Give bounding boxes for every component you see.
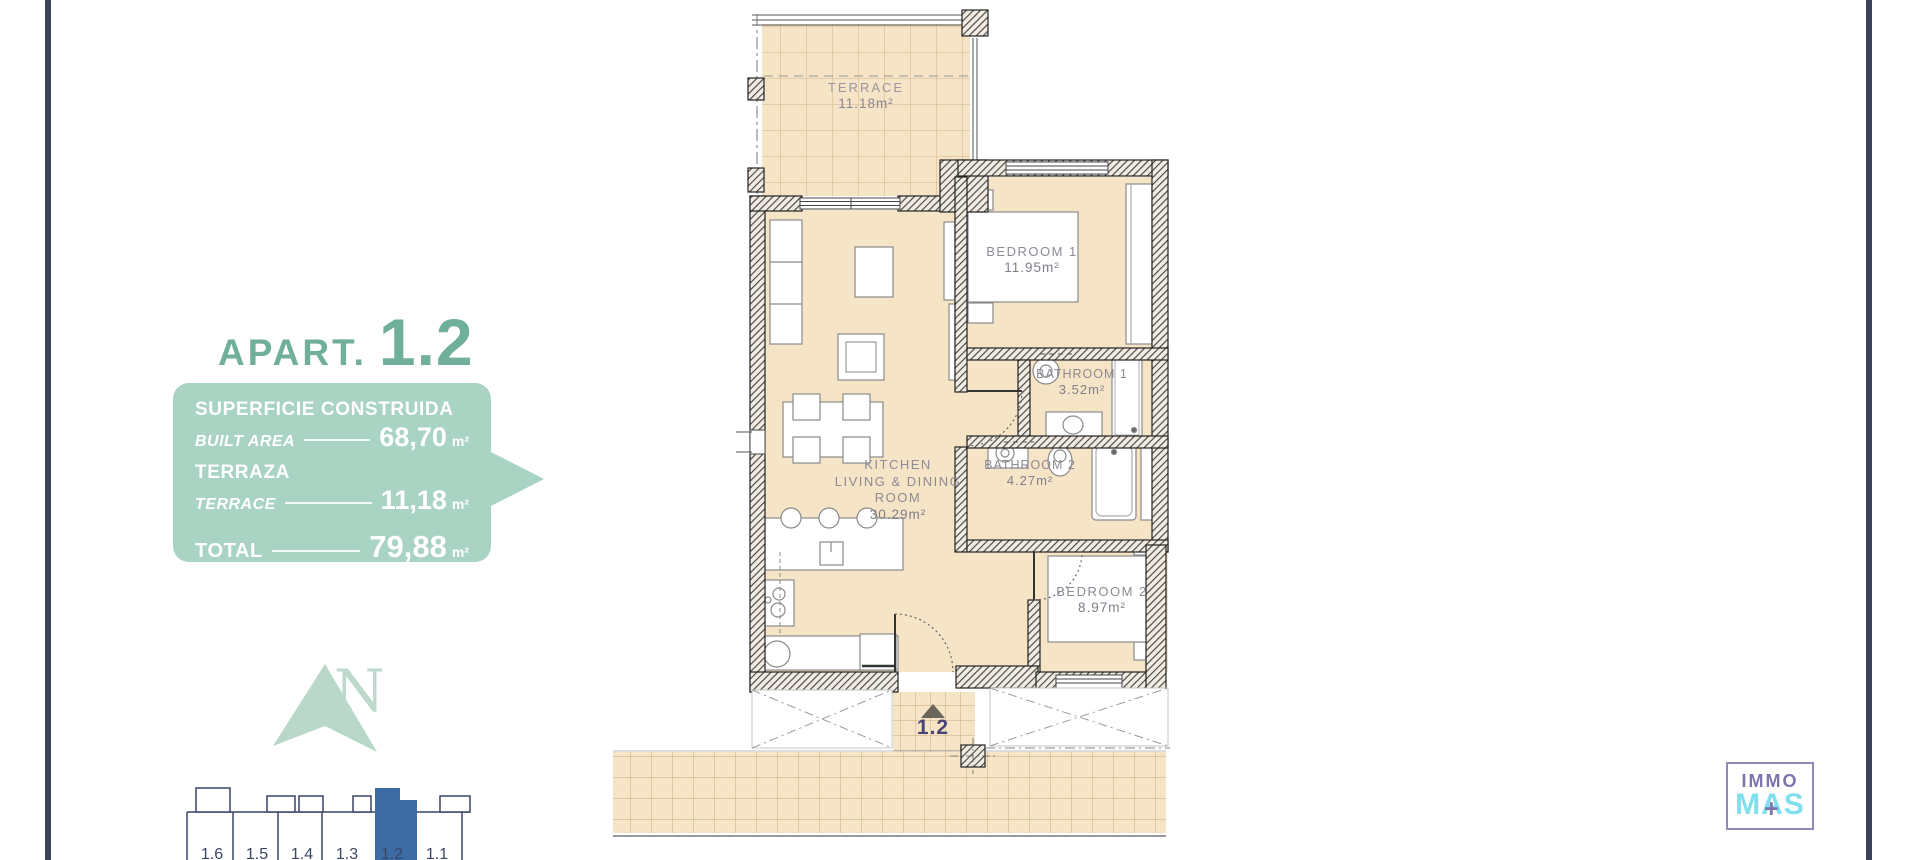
unit-label-1-4: 1.4 — [287, 846, 317, 860]
fridge — [860, 634, 896, 670]
chair — [793, 394, 820, 420]
total-row: TOTAL 79,88 m² — [195, 529, 469, 565]
unit-label-1-2: 1.2 — [377, 846, 407, 860]
unit-label-1-5: 1.5 — [242, 846, 272, 860]
built-area-label-en: BUILT AREA — [195, 433, 295, 451]
bottom-wall — [750, 672, 898, 692]
terrace-sliding-door — [800, 198, 900, 209]
north-letter: N — [334, 662, 385, 720]
left-wall-opening — [750, 430, 765, 454]
total-label: TOTAL — [195, 540, 263, 563]
built-area-label-es: SUPERFICIE CONSTRUIDA — [195, 399, 469, 421]
bed — [1048, 556, 1156, 642]
armchair — [838, 334, 884, 380]
unit-dividers — [187, 812, 462, 860]
terrace-unit: m² — [452, 496, 469, 512]
terrace-row: TERRACE 11,18 m² — [195, 485, 469, 516]
page-title: APART. 1.2 — [218, 304, 474, 380]
arrow-right-icon — [489, 451, 544, 507]
unit-label-1-3: 1.3 — [332, 846, 362, 860]
leader-line — [304, 439, 370, 441]
tv — [949, 304, 955, 380]
bathroom1-name: BATHROOM 1 — [1036, 367, 1128, 381]
surface-info-box: SUPERFICIE CONSTRUIDA BUILT AREA 68,70 m… — [173, 383, 491, 562]
immomas-logo: IMMO MAS + — [1726, 762, 1814, 830]
unit-label-1-6: 1.6 — [197, 846, 227, 860]
bedroom2-name: BEDROOM 2 — [1056, 584, 1148, 599]
chair — [793, 437, 820, 463]
bedroom2-window — [1056, 675, 1122, 688]
built-area-row: BUILT AREA 68,70 m² — [195, 422, 469, 453]
bedroom2-area: 8.97m² — [1078, 600, 1126, 615]
kitchen-sink — [764, 641, 790, 667]
bathroom2-name: BATHROOM 2 — [984, 458, 1076, 472]
tv-unit — [944, 222, 955, 300]
unit-label-1-1: 1.1 — [422, 846, 452, 860]
floor-plan-sheet: APART. 1.2 SUPERFICIE CONSTRUIDA BUILT A… — [0, 0, 1920, 860]
built-area-value: 68,70 — [379, 422, 447, 453]
built-area-unit: m² — [452, 433, 469, 449]
right-page-border — [1866, 0, 1872, 860]
terrace-label-en: TERRACE — [195, 496, 276, 514]
bathroom1-area: 3.52m² — [1059, 382, 1105, 397]
bar-stool — [781, 508, 801, 528]
bedroom1-area: 11.95m² — [1004, 260, 1060, 275]
entrance-unit-label: 1.2 — [917, 716, 949, 739]
floor-plan-drawing: TERRACE 11.18m² BEDROOM 1 11.95m² BATHRO… — [600, 0, 1200, 860]
living-name-line1: KITCHEN — [864, 457, 932, 472]
plus-icon: + — [1764, 795, 1779, 824]
shower — [1112, 352, 1142, 438]
terrace-label-es: TERRAZA — [195, 462, 469, 484]
total-unit: m² — [452, 544, 469, 560]
coffee-table — [855, 247, 893, 297]
apartment-number: 1.2 — [379, 304, 474, 380]
leader-line — [272, 550, 360, 552]
terrace-value: 11,18 — [381, 485, 447, 516]
terrace-area: 11.18m² — [838, 96, 894, 111]
terrace-name: TERRACE — [828, 80, 904, 95]
bedroom1-name: BEDROOM 1 — [986, 244, 1078, 259]
living-name-line3: ROOM — [875, 490, 921, 505]
bedroom1-window — [1006, 162, 1108, 174]
living-area: 30.29m² — [870, 507, 927, 522]
balcony-outlines — [196, 788, 470, 812]
bathroom2-area: 4.27m² — [1007, 473, 1053, 488]
apartment-label: APART. — [218, 332, 367, 374]
total-value: 79,88 — [369, 529, 447, 565]
sofa — [770, 220, 802, 344]
nightstand — [968, 303, 993, 323]
bar-stool — [819, 508, 839, 528]
chair — [843, 394, 870, 420]
left-page-border — [45, 0, 51, 860]
leader-line — [285, 502, 372, 504]
living-name-line2: LIVING & DINING — [835, 474, 962, 489]
terrace-column — [962, 10, 988, 36]
wardrobe — [1126, 184, 1152, 344]
